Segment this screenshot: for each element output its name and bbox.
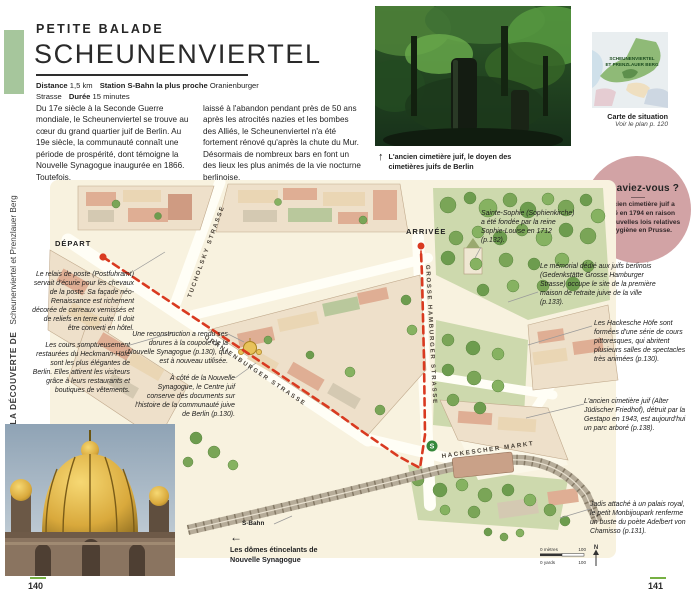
meta-value-distance: 1,5 km xyxy=(70,81,93,90)
sbahn-line-label: S-Bahn xyxy=(242,520,264,527)
annotation-centre-juif: À côté de la Nouvelle Synagogue, le Cent… xyxy=(133,375,235,420)
situation-map-art: SCHEUNENVIERTEL ET PRENZLAUER BERG xyxy=(592,32,668,108)
right-folio-rule xyxy=(650,577,666,579)
situation-title: Carte de situation xyxy=(607,112,668,121)
synagogue-caption-text: Les dômes étincelants de Nouvelle Synago… xyxy=(230,545,325,564)
cemetery-photo-art xyxy=(375,6,571,146)
annotation-sainte-sophie: Sainte-Sophie (Sophienkirche) a été fond… xyxy=(481,210,577,246)
synagogue-photo xyxy=(5,424,175,576)
annotation-hackesche-hoefe: Les Hackesche Höfe sont formées d'une sé… xyxy=(594,320,686,365)
cemetery-photo xyxy=(375,6,571,146)
walk-kicker: PETITE BALADE xyxy=(36,22,164,36)
synagogue-photo-art xyxy=(5,424,175,576)
situation-map: SCHEUNENVIERTEL ET PRENZLAUER BERG xyxy=(592,32,668,108)
cemetery-caption: ↑ L'ancien cimetière juif, le doyen des … xyxy=(378,152,548,171)
section-name: Scheunenviertel et Prenzlauer Berg xyxy=(9,195,18,324)
cemetery-caption-text: L'ancien cimetière juif, le doyen des ci… xyxy=(389,152,549,171)
annotation-postfuhramt: Le relais de poste (Postfuhramt) servait… xyxy=(30,271,134,334)
meta-label-distance: Distance xyxy=(36,81,68,90)
annotation-memorial: Le mémorial dédié aux juifs berlinois (G… xyxy=(540,263,664,308)
right-page-number: 141 xyxy=(648,581,663,591)
walk-metadata: Distance 1,5 km Station S-Bahn la plus p… xyxy=(36,80,262,102)
up-arrow-icon: ↑ xyxy=(378,152,384,171)
scale-yards-label: 0 yards xyxy=(540,560,556,565)
annotation-synagogue-coupole: Une reconstruction a rendu ses dorures à… xyxy=(126,331,228,367)
series-name: À LA DÉCOUVERTE DE xyxy=(9,332,18,434)
annotation-ancien-cimetiere: L'ancien cimetière juif (Alter Jüdischer… xyxy=(584,398,686,434)
situation-caption: Carte de situation Voir le plan p. 120 xyxy=(556,112,668,128)
guidebook-spread: À LA DÉCOUVERTE DEScheunenviertel et Pre… xyxy=(0,0,700,607)
series-vertical-label: À LA DÉCOUVERTE DEScheunenviertel et Pre… xyxy=(9,104,27,434)
meta-label-station: Station S-Bahn la plus proche xyxy=(100,81,208,90)
depart-label: DÉPART xyxy=(55,239,91,248)
synagogue-caption: ← Les dômes étincelants de Nouvelle Syna… xyxy=(230,531,325,564)
intro-column-2: laissé à l'abandon pendant près de 50 an… xyxy=(203,103,363,183)
left-page-number: 140 xyxy=(28,581,43,591)
route-start-dot xyxy=(99,253,106,260)
scale-metres-label: 0 mètres xyxy=(540,547,559,552)
title-rule xyxy=(36,74,248,76)
annotation-monbijoupark: Jadis attaché à un palais royal, le peti… xyxy=(590,501,690,537)
left-folio-rule xyxy=(30,577,46,579)
arrivee-label: ARRIVÉE xyxy=(406,227,446,236)
sbahn-badge-letter: S xyxy=(430,444,435,451)
series-color-tab xyxy=(4,30,24,94)
page-title: SCHEUNENVIERTEL xyxy=(34,39,322,70)
scale-metres-value: 100 xyxy=(578,547,586,552)
left-arrow-icon: ← xyxy=(230,531,325,543)
route-end-pin xyxy=(417,242,425,250)
meta-label-duree: Durée xyxy=(69,92,91,101)
situation-subtitle: Voir le plan p. 120 xyxy=(556,121,668,128)
meta-value-duree: 15 minutes xyxy=(93,92,130,101)
intro-column-1: Du 17e siècle à la Seconde Guerre mondia… xyxy=(36,103,196,183)
situation-area-label-2: ET PRENZLAUER BERG xyxy=(605,62,659,67)
situation-area-label-1: SCHEUNENVIERTEL xyxy=(609,56,654,61)
annotation-heckmann-hoefe: Les cours somptueusement restaurées du H… xyxy=(32,342,130,396)
scale-yards-value: 100 xyxy=(578,560,586,565)
